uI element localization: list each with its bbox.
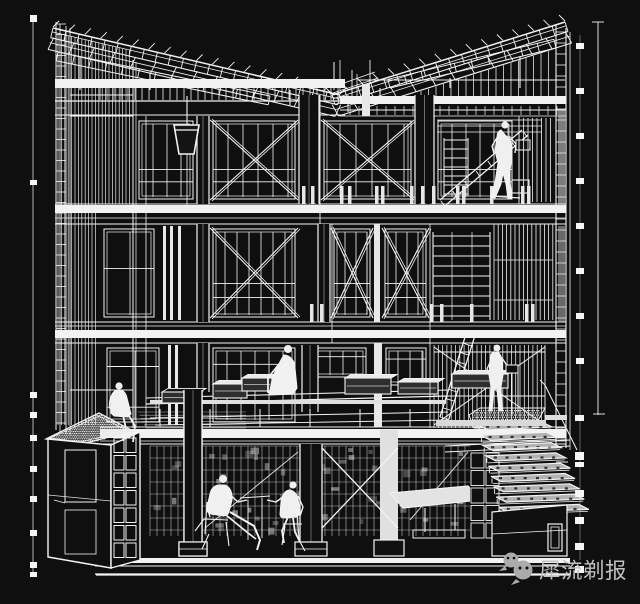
svg-text:犀流剃报: 犀流剃报 bbox=[539, 559, 627, 583]
